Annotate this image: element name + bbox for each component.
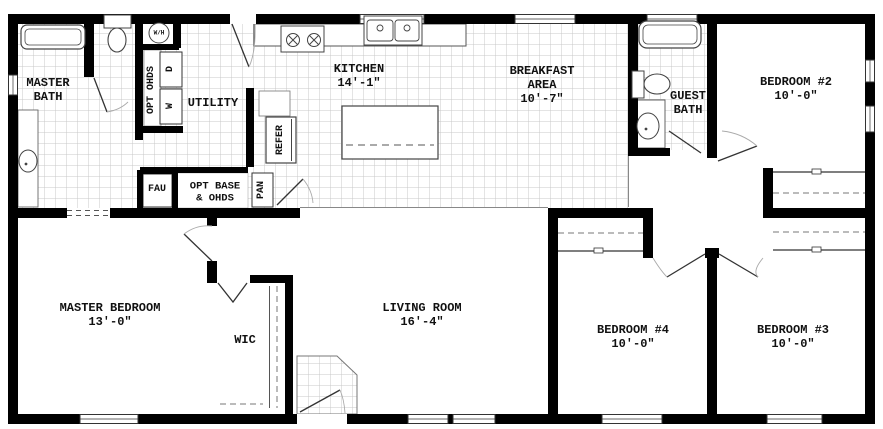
master-toilet-tank — [104, 15, 131, 28]
room-label-utility: UTILITY — [188, 96, 238, 110]
fixture-label-opt-ohds: OPT OHDS — [146, 66, 158, 114]
master-sink-icon — [19, 150, 37, 172]
floor-plan: MASTER BATH UTILITY KITCHEN 14'-1" BREAK… — [0, 0, 883, 429]
guest-toilet-icon — [644, 74, 670, 94]
window — [80, 415, 138, 424]
guest-sink-icon — [637, 113, 659, 139]
bedroom4-door-leaf — [667, 254, 705, 277]
window — [866, 60, 875, 82]
fixture-label-water-heater: W/H — [154, 29, 165, 36]
window — [602, 415, 662, 424]
room-label-bedroom-3: BEDROOM #3 10'-0" — [757, 323, 829, 351]
fixture-label-pan: PAN — [256, 181, 268, 199]
window — [453, 415, 495, 424]
room-label-kitchen: KITCHEN 14'-1" — [334, 62, 384, 90]
wic-door-leaf — [218, 283, 247, 302]
window — [866, 106, 875, 132]
room-label-master-bedroom: MASTER BEDROOM 13'-0" — [60, 301, 161, 329]
fixture-label-washer: W — [165, 103, 177, 109]
fixture-label-opt-base: OPT BASE & OHDS — [190, 181, 240, 206]
room-label-guest-bath: GUEST BATH — [670, 89, 706, 117]
room-label-bedroom-4: BEDROOM #4 10'-0" — [597, 323, 669, 351]
bedroom2-door-leaf — [718, 146, 757, 161]
master-bedroom-door-leaf — [184, 234, 212, 261]
master-toilet-icon — [108, 28, 126, 52]
window — [767, 415, 822, 424]
fixture-label-fau: FAU — [148, 184, 166, 196]
room-label-bedroom-2: BEDROOM #2 10'-0" — [760, 75, 832, 103]
kitchen-island — [342, 106, 438, 159]
floor-plan-canvas — [0, 0, 883, 429]
cased-opening — [67, 208, 110, 218]
window — [515, 15, 575, 24]
fixture-label-refer: REFER — [275, 125, 287, 155]
room-label-breakfast: BREAKFAST AREA 10'-7" — [510, 64, 575, 106]
window — [9, 75, 18, 95]
window — [408, 415, 448, 424]
guest-toilet-tank — [632, 71, 644, 98]
fixture-label-dryer: D — [165, 66, 177, 72]
room-label-wic: WIC — [234, 333, 256, 347]
bedroom3-door-leaf — [719, 254, 758, 277]
room-label-master-bath: MASTER BATH — [26, 76, 69, 104]
room-label-living-room: LIVING ROOM 16'-4" — [382, 301, 461, 329]
entry-tile — [297, 356, 357, 414]
